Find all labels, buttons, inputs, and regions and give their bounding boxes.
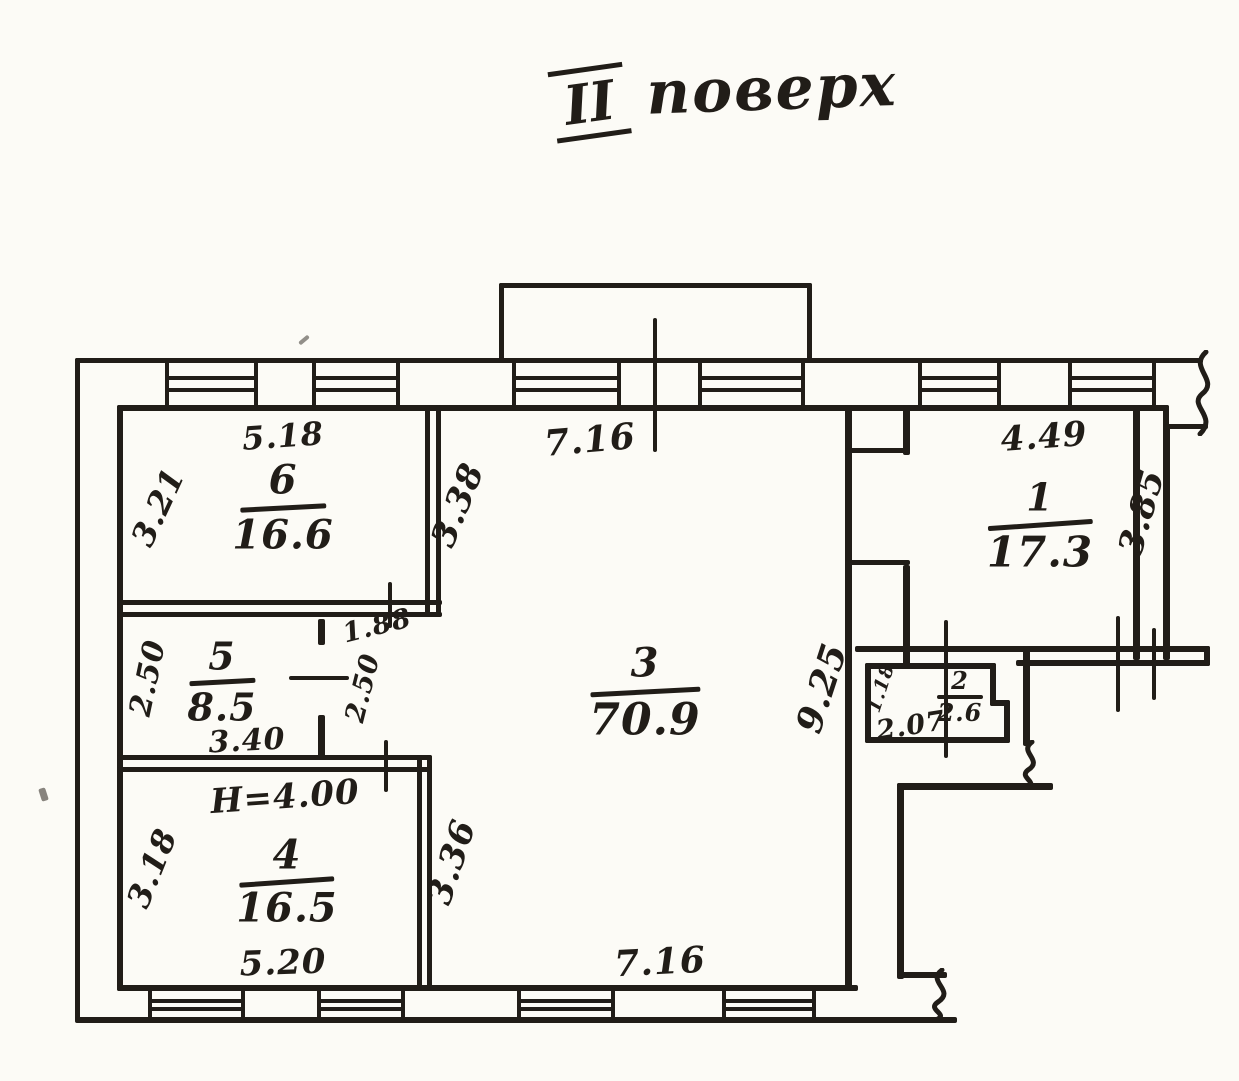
dim-room5-left: 2.50 [123,637,173,720]
window-symbol [512,363,621,405]
dim-room1-top: 4.49 [999,414,1088,460]
dim-room5-bottom: 3.40 [208,722,287,761]
wall-right-vertical-lower [897,783,904,979]
balcony-wall-left [499,283,504,360]
window-symbol [1068,363,1156,405]
window-symbol [148,991,245,1017]
wall-break-icon [1186,350,1222,436]
room-4-area: 16.5 [236,888,337,930]
window-symbol [165,363,258,405]
scan-speck [38,787,49,802]
dim-room6-top: 5.18 [241,414,325,458]
room-6-label: 6 16.6 [232,459,333,558]
window-symbol [317,991,405,1017]
ceiling-height-note: H=4.00 [209,772,361,822]
wall-room1-right-outer [1163,424,1170,660]
dimension-tick [384,740,388,792]
wall-room6-room3-a [425,405,430,614]
door-jamb-bottom [845,560,910,565]
wall-room3-right [845,405,852,990]
room-4-label: 4 16.5 [236,835,337,930]
wall-bottom-outer [75,1017,957,1023]
room-6-area: 16.6 [232,514,333,558]
wall-left-outer [75,358,80,1022]
title-word: поверх [645,50,898,129]
wall-top-inner [117,405,1169,411]
dim-room4-left: 3.18 [119,823,185,913]
dimension-tick [1116,616,1120,712]
dim-room3-bottom: 7.16 [613,939,707,986]
wall-left-inner [117,405,123,991]
room-1-label: 1 17.3 [987,476,1093,575]
window-symbol [517,991,615,1017]
room-3-label: 3 70.9 [589,641,700,744]
wall-break-icon [1014,740,1048,790]
window-symbol [722,991,816,1017]
room-3-number: 3 [589,641,700,687]
dim-room4-bottom: 5.20 [239,941,327,984]
wall-room1-bottom-a [855,646,1210,652]
wall-room5-right-upper [318,619,325,645]
wall-room1-bottom-b [1016,660,1210,666]
window-symbol [698,363,805,405]
room-3-area: 70.9 [589,698,700,744]
wall-break-icon [920,968,960,1022]
room-2-number: 2 [937,669,983,693]
room-4-number: 4 [236,835,337,877]
wall-room5-right-lower [318,715,325,760]
dim-niche-height: 2.50 [340,650,387,725]
wall-room2-right-lower [1004,700,1010,743]
door-jamb-top [845,448,910,453]
wall-room1-bottom-cap [1204,646,1210,666]
window-symbol [312,363,400,405]
dim-room3-left-upper: 3.38 [423,457,493,552]
room-1-area: 17.3 [987,531,1093,575]
drawing-title: IIповерх [551,50,899,140]
title-roman-numeral: II [548,62,632,144]
dim-niche-width: 1.88 [339,603,414,650]
dim-room6-left: 3.21 [123,462,192,552]
balcony-wall-right [807,283,812,360]
wall-right-vertical-upper [1023,646,1030,746]
room-5-number: 5 [187,637,256,677]
room-5-label: 5 8.5 [187,637,256,728]
scan-speck [298,335,310,346]
room-1-number: 1 [987,476,1093,520]
balcony-wall-top [499,283,812,288]
dimension-tick [1152,628,1156,700]
dimension-tick [289,676,349,680]
window-symbol [918,363,1001,405]
room-5-area: 8.5 [187,688,256,728]
dimension-tick [653,318,657,452]
room-6-number: 6 [232,459,333,503]
wall-room4-room3-a [417,755,422,990]
wall-room6-bottom-a [117,600,442,605]
dim-room3-top: 7.16 [543,415,638,465]
floor-plan-sheet: IIповерх [0,0,1239,1081]
